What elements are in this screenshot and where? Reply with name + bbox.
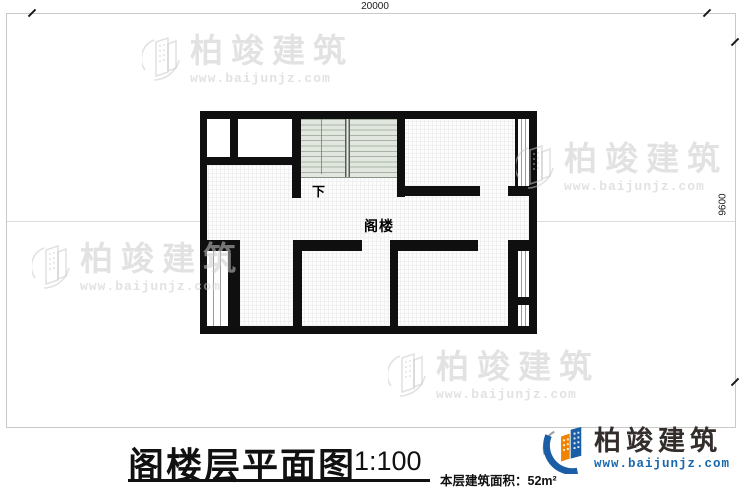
window (518, 119, 529, 186)
wall (200, 240, 240, 251)
wall (200, 157, 293, 165)
staircase (301, 119, 397, 178)
attic-room-label: 阁楼 (364, 216, 394, 236)
closet-room (238, 119, 292, 157)
wall (508, 251, 518, 326)
wall (292, 119, 301, 198)
title-underline (128, 479, 430, 482)
stair-flight-divider (345, 119, 350, 177)
floor-plan: 下 阁楼 (200, 111, 537, 334)
dim-right-label: 9600 (718, 193, 729, 215)
drawing-scale: 1:100 (354, 446, 422, 477)
brand-website: www.baijunjz.com (594, 457, 730, 471)
wall (200, 326, 537, 334)
closet-room (207, 119, 230, 157)
brand-company: 柏竣建筑 (594, 427, 730, 457)
window (207, 251, 228, 326)
drawing-sheet: 20000 9600 柏竣建筑 www.baijunjz.com 柏竣建筑 ww… (0, 0, 750, 492)
wall (529, 111, 537, 334)
brand-block: 柏竣建筑 www.baijunjz.com (538, 424, 730, 474)
floor-area-label: 本层建筑面积： (440, 474, 528, 488)
wall (230, 119, 238, 161)
dim-top-label: 20000 (352, 1, 398, 12)
stairs-down-label: 下 (312, 181, 325, 200)
window (518, 251, 529, 297)
wall (293, 251, 302, 326)
wall (508, 186, 537, 196)
wall (518, 297, 529, 305)
wall (200, 111, 207, 334)
window (518, 305, 529, 326)
floor-area-value: 52m² (528, 474, 557, 488)
wall (228, 251, 240, 326)
wall (390, 251, 398, 326)
wall (200, 111, 537, 119)
stair-edge-line (321, 119, 322, 174)
wall (508, 240, 537, 251)
wall (515, 119, 518, 186)
wall (390, 240, 478, 251)
wall (397, 186, 480, 196)
brand-logo-icon (538, 424, 588, 474)
wall (293, 240, 362, 251)
